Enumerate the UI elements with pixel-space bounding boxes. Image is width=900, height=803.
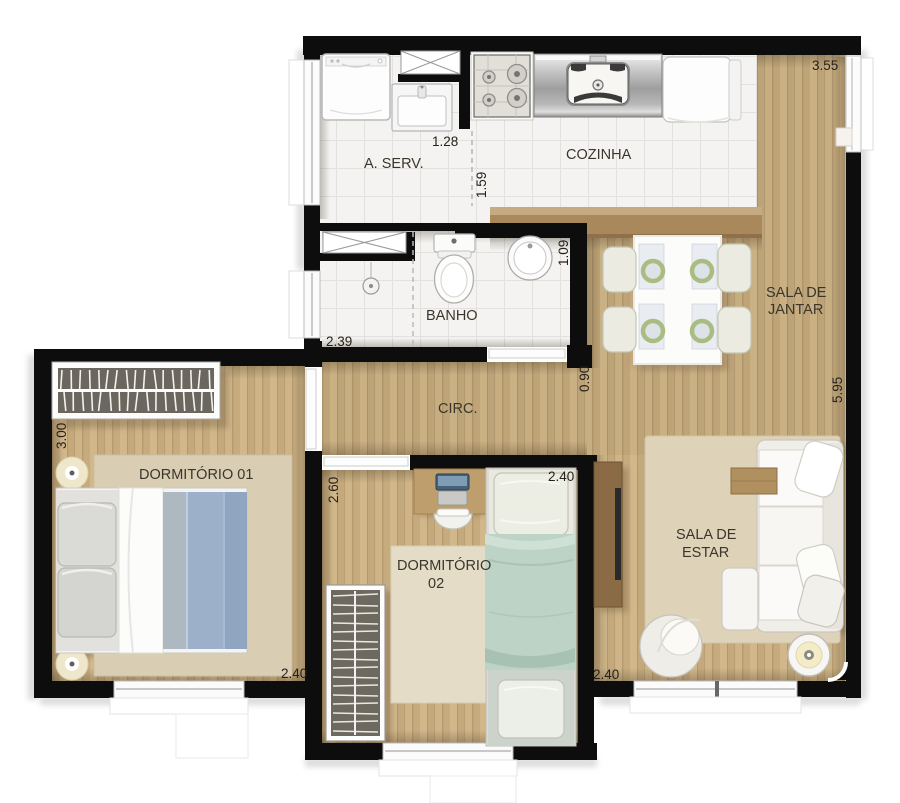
svg-text:SALA DE: SALA DE <box>766 285 827 301</box>
svg-text:1.28: 1.28 <box>432 134 458 149</box>
svg-text:DORMITÓRIO: DORMITÓRIO <box>397 557 491 574</box>
svg-text:5.95: 5.95 <box>830 377 845 403</box>
svg-text:0.90: 0.90 <box>577 366 592 392</box>
svg-text:A. SERV.: A. SERV. <box>364 156 424 172</box>
svg-text:2.40: 2.40 <box>281 666 307 681</box>
svg-text:3.55: 3.55 <box>812 58 838 73</box>
svg-text:COZINHA: COZINHA <box>566 147 632 163</box>
svg-text:SALA DE: SALA DE <box>676 527 737 543</box>
svg-text:2.40: 2.40 <box>548 469 574 484</box>
svg-text:BANHO: BANHO <box>426 308 478 324</box>
svg-text:CIRC.: CIRC. <box>438 401 477 417</box>
svg-text:3.00: 3.00 <box>54 423 69 449</box>
svg-text:JANTAR: JANTAR <box>768 302 823 318</box>
svg-text:1.59: 1.59 <box>474 172 489 198</box>
svg-text:2.40: 2.40 <box>593 667 619 682</box>
svg-text:DORMITÓRIO 01: DORMITÓRIO 01 <box>139 466 253 483</box>
svg-text:ESTAR: ESTAR <box>682 545 729 561</box>
svg-text:02: 02 <box>428 576 444 592</box>
svg-text:1.09: 1.09 <box>556 240 571 266</box>
svg-text:2.60: 2.60 <box>326 477 341 503</box>
svg-text:2.39: 2.39 <box>326 334 352 349</box>
